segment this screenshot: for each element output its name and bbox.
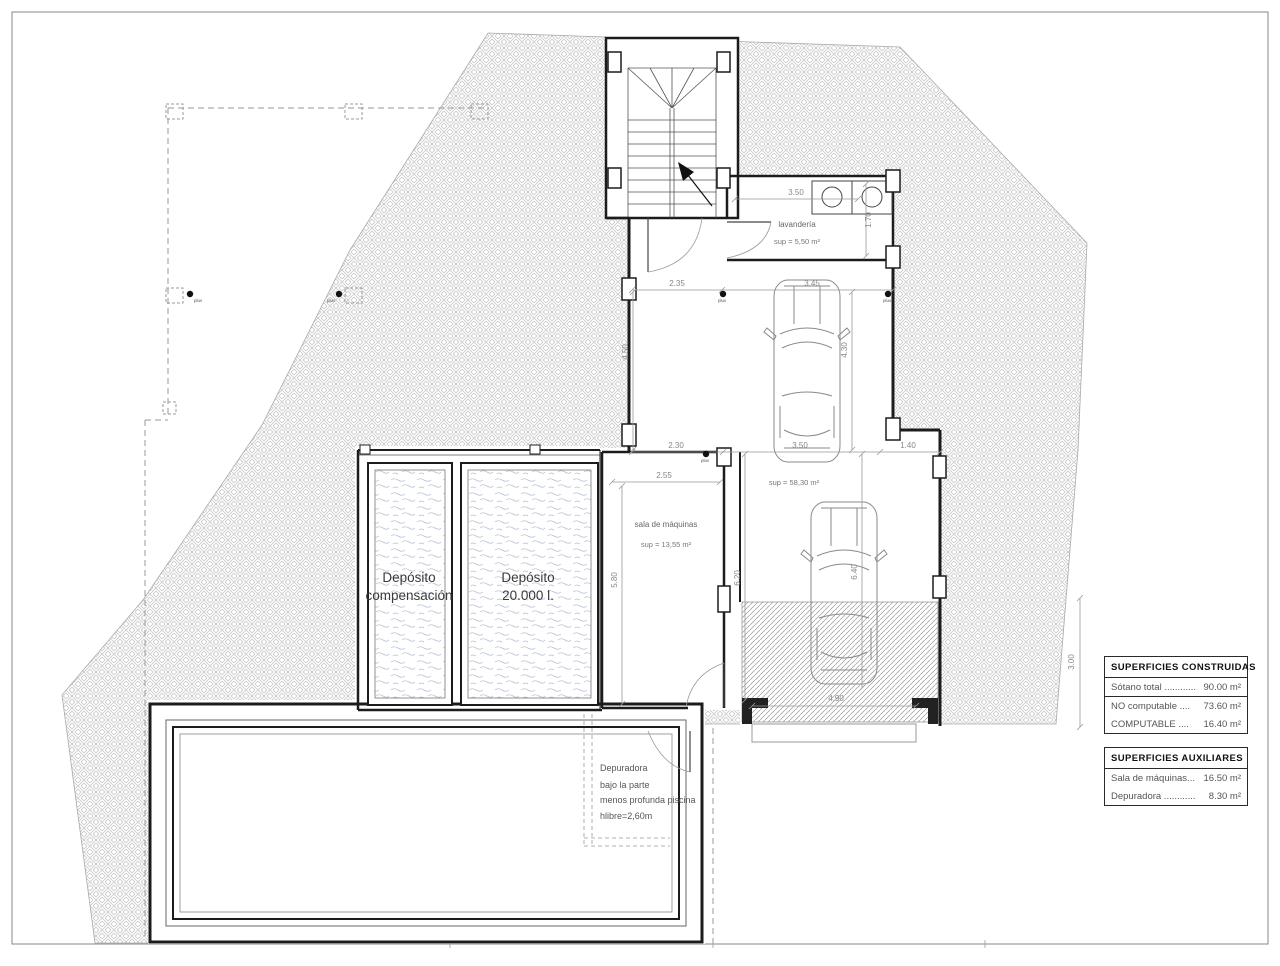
pluv-marker: pluv: [187, 291, 203, 303]
dim-step-width: 1.40: [900, 441, 916, 450]
dim-laundry-height: 1.70: [864, 212, 873, 228]
ramp: [742, 602, 938, 742]
dim-garage-height-right: 4.30: [840, 342, 849, 358]
constructed-areas-header: SUPERFICIES CONSTRUIDAS: [1105, 657, 1247, 678]
dim-ramp-width: 4.90: [828, 694, 844, 703]
dim-car-bay-width: 3.45: [804, 279, 820, 288]
row-value: 8.30 m²: [1205, 791, 1241, 802]
machine-name-label: sala de máquinas: [635, 520, 698, 529]
pluv-label: pluv: [883, 298, 892, 303]
laundry-name-label: lavandería: [778, 220, 816, 229]
row-value: 90.00 m²: [1200, 682, 1242, 693]
pool-note-line1: Depuradora: [600, 763, 648, 773]
row-label: Depuradora ............: [1111, 791, 1195, 802]
drawing-sheet: 3.50 1.70 2.35 3.45 4.50 4.30 2.30 3.50 …: [0, 0, 1280, 966]
tank2-label-line2: 20.000 l.: [502, 588, 554, 603]
table-row: Sala de máquinas... 16.50 m²: [1105, 769, 1247, 787]
table-row: NO computable .... 73.60 m²: [1105, 697, 1247, 715]
dim-hall-width-2: 2.30: [668, 441, 684, 450]
pool-note-line3: menos profunda piscina: [600, 795, 696, 805]
row-value: 16.50 m²: [1200, 773, 1242, 784]
row-label: COMPUTABLE ....: [1111, 719, 1189, 730]
constructed-areas-table: SUPERFICIES CONSTRUIDAS Sótano total ...…: [1104, 656, 1248, 734]
auxiliary-areas-header: SUPERFICIES AUXILIARES: [1105, 748, 1247, 769]
row-value: 16.40 m²: [1200, 719, 1242, 730]
dim-garage-low-left: 6.20: [733, 570, 742, 586]
dim-garage-height-left: 4.50: [621, 344, 630, 360]
pluv-label: pluv: [718, 298, 727, 303]
tank1-label-line2: compensación: [365, 588, 452, 603]
laundry-area-label: sup = 5,50 m²: [774, 237, 821, 246]
garage-area-label: sup = 58,30 m²: [769, 478, 820, 487]
dim-machine-height: 5.80: [610, 572, 619, 588]
table-row: Depuradora ............ 8.30 m²: [1105, 787, 1247, 805]
tank2-label-line1: Depósito: [501, 570, 554, 585]
dim-garage-width: 3.50: [792, 441, 808, 450]
pluv-label: pluv: [327, 298, 336, 303]
auxiliary-areas-table: SUPERFICIES AUXILIARES Sala de máquinas.…: [1104, 747, 1248, 806]
dim-garage-low-right: 6.40: [850, 564, 859, 580]
pool-note-line2: bajo la parte: [600, 780, 650, 790]
dim-hall-width: 2.35: [669, 279, 685, 288]
dim-ramp-height: 3.00: [1067, 654, 1076, 670]
row-value: 73.60 m²: [1200, 701, 1242, 712]
pluv-label: pluv: [701, 458, 710, 463]
dim-laundry-width: 3.50: [788, 188, 804, 197]
table-row: Sótano total ............ 90.00 m²: [1105, 678, 1247, 696]
table-row: COMPUTABLE .... 16.40 m²: [1105, 715, 1247, 733]
floor-plan-drawing: 3.50 1.70 2.35 3.45 4.50 4.30 2.30 3.50 …: [0, 0, 1280, 966]
row-label: NO computable ....: [1111, 701, 1190, 712]
tank1-label-line1: Depósito: [382, 570, 435, 585]
pluv-label: pluv: [194, 298, 203, 303]
pool-note-line4: hlibre=2,60m: [600, 811, 652, 821]
row-label: Sala de máquinas...: [1111, 773, 1195, 784]
machine-area-label: sup = 13,55 m²: [641, 540, 692, 549]
dim-machine-width: 2.55: [656, 471, 672, 480]
row-label: Sótano total ............: [1111, 682, 1196, 693]
